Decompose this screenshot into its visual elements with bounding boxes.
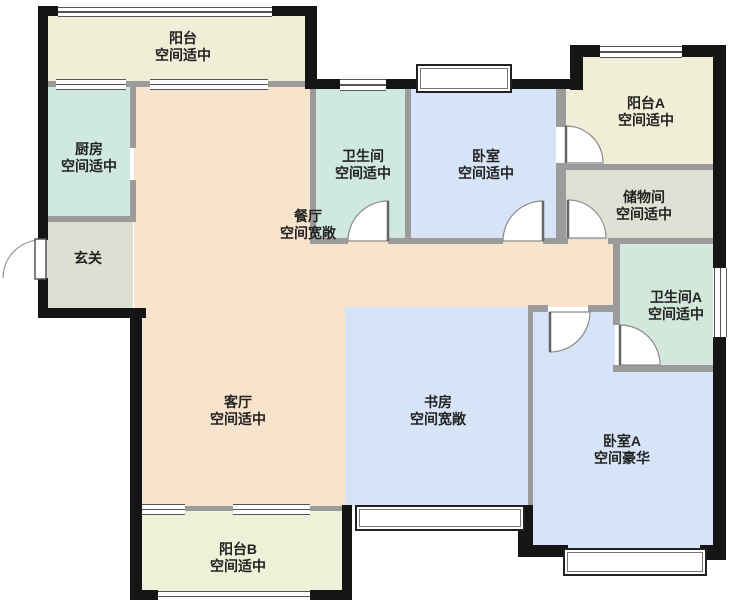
room-name: 阳台A (581, 95, 711, 112)
room-status: 空间适中 (621, 306, 731, 323)
balcony-a-door (566, 126, 603, 163)
room-name: 卫生间 (298, 148, 428, 165)
room-status: 空间宽敞 (373, 411, 503, 428)
room-status: 空间适中 (579, 206, 709, 223)
label-kitchen: 厨房 空间适中 (24, 141, 154, 175)
room-status: 空间适中 (298, 165, 428, 182)
room-status: 空间适中 (421, 165, 551, 182)
room-name: 厨房 (24, 141, 154, 158)
label-dining: 餐厅 空间宽敞 (243, 208, 373, 242)
room-name: 阳台 (118, 30, 248, 47)
room-name: 储物间 (579, 189, 709, 206)
room-name: 餐厅 (243, 208, 373, 225)
floorplan-canvas: 阳台 空间适中 厨房 空间适中 卫生间 空间适中 卧室 空间适中 阳台A 空间适… (0, 0, 731, 600)
room-name: 客厅 (173, 394, 303, 411)
room-name: 书房 (373, 394, 503, 411)
label-balcony-a: 阳台A 空间适中 (581, 95, 711, 129)
label-balcony-b: 阳台B 空间适中 (173, 541, 303, 575)
bedroom-a-door (550, 312, 590, 352)
label-study: 书房 空间宽敞 (373, 394, 503, 428)
label-bathroom: 卫生间 空间适中 (298, 148, 428, 182)
label-foyer: 玄关 (23, 250, 153, 267)
room-name: 卧室A (557, 433, 687, 450)
room-status: 空间适中 (173, 411, 303, 428)
room-name: 卧室 (421, 148, 551, 165)
room-name: 卫生间A (621, 289, 731, 306)
label-bedroom: 卧室 空间适中 (421, 148, 551, 182)
room-status: 空间适中 (173, 558, 303, 575)
label-living: 客厅 空间适中 (173, 394, 303, 428)
label-bedroom-a: 卧室A 空间豪华 (557, 433, 687, 467)
bathroom-a-door (620, 325, 660, 365)
room-status: 空间适中 (581, 112, 711, 129)
bedroom-door (503, 201, 543, 241)
label-balcony-top: 阳台 空间适中 (118, 30, 248, 64)
label-storage: 储物间 空间适中 (579, 189, 709, 223)
room-name: 玄关 (23, 250, 153, 267)
room-status: 空间适中 (118, 47, 248, 64)
room-name: 阳台B (173, 541, 303, 558)
room-status: 空间豪华 (557, 450, 687, 467)
room-status: 空间适中 (24, 158, 154, 175)
label-bathroom-a: 卫生间A 空间适中 (621, 289, 731, 323)
room-status: 空间宽敞 (243, 225, 373, 242)
